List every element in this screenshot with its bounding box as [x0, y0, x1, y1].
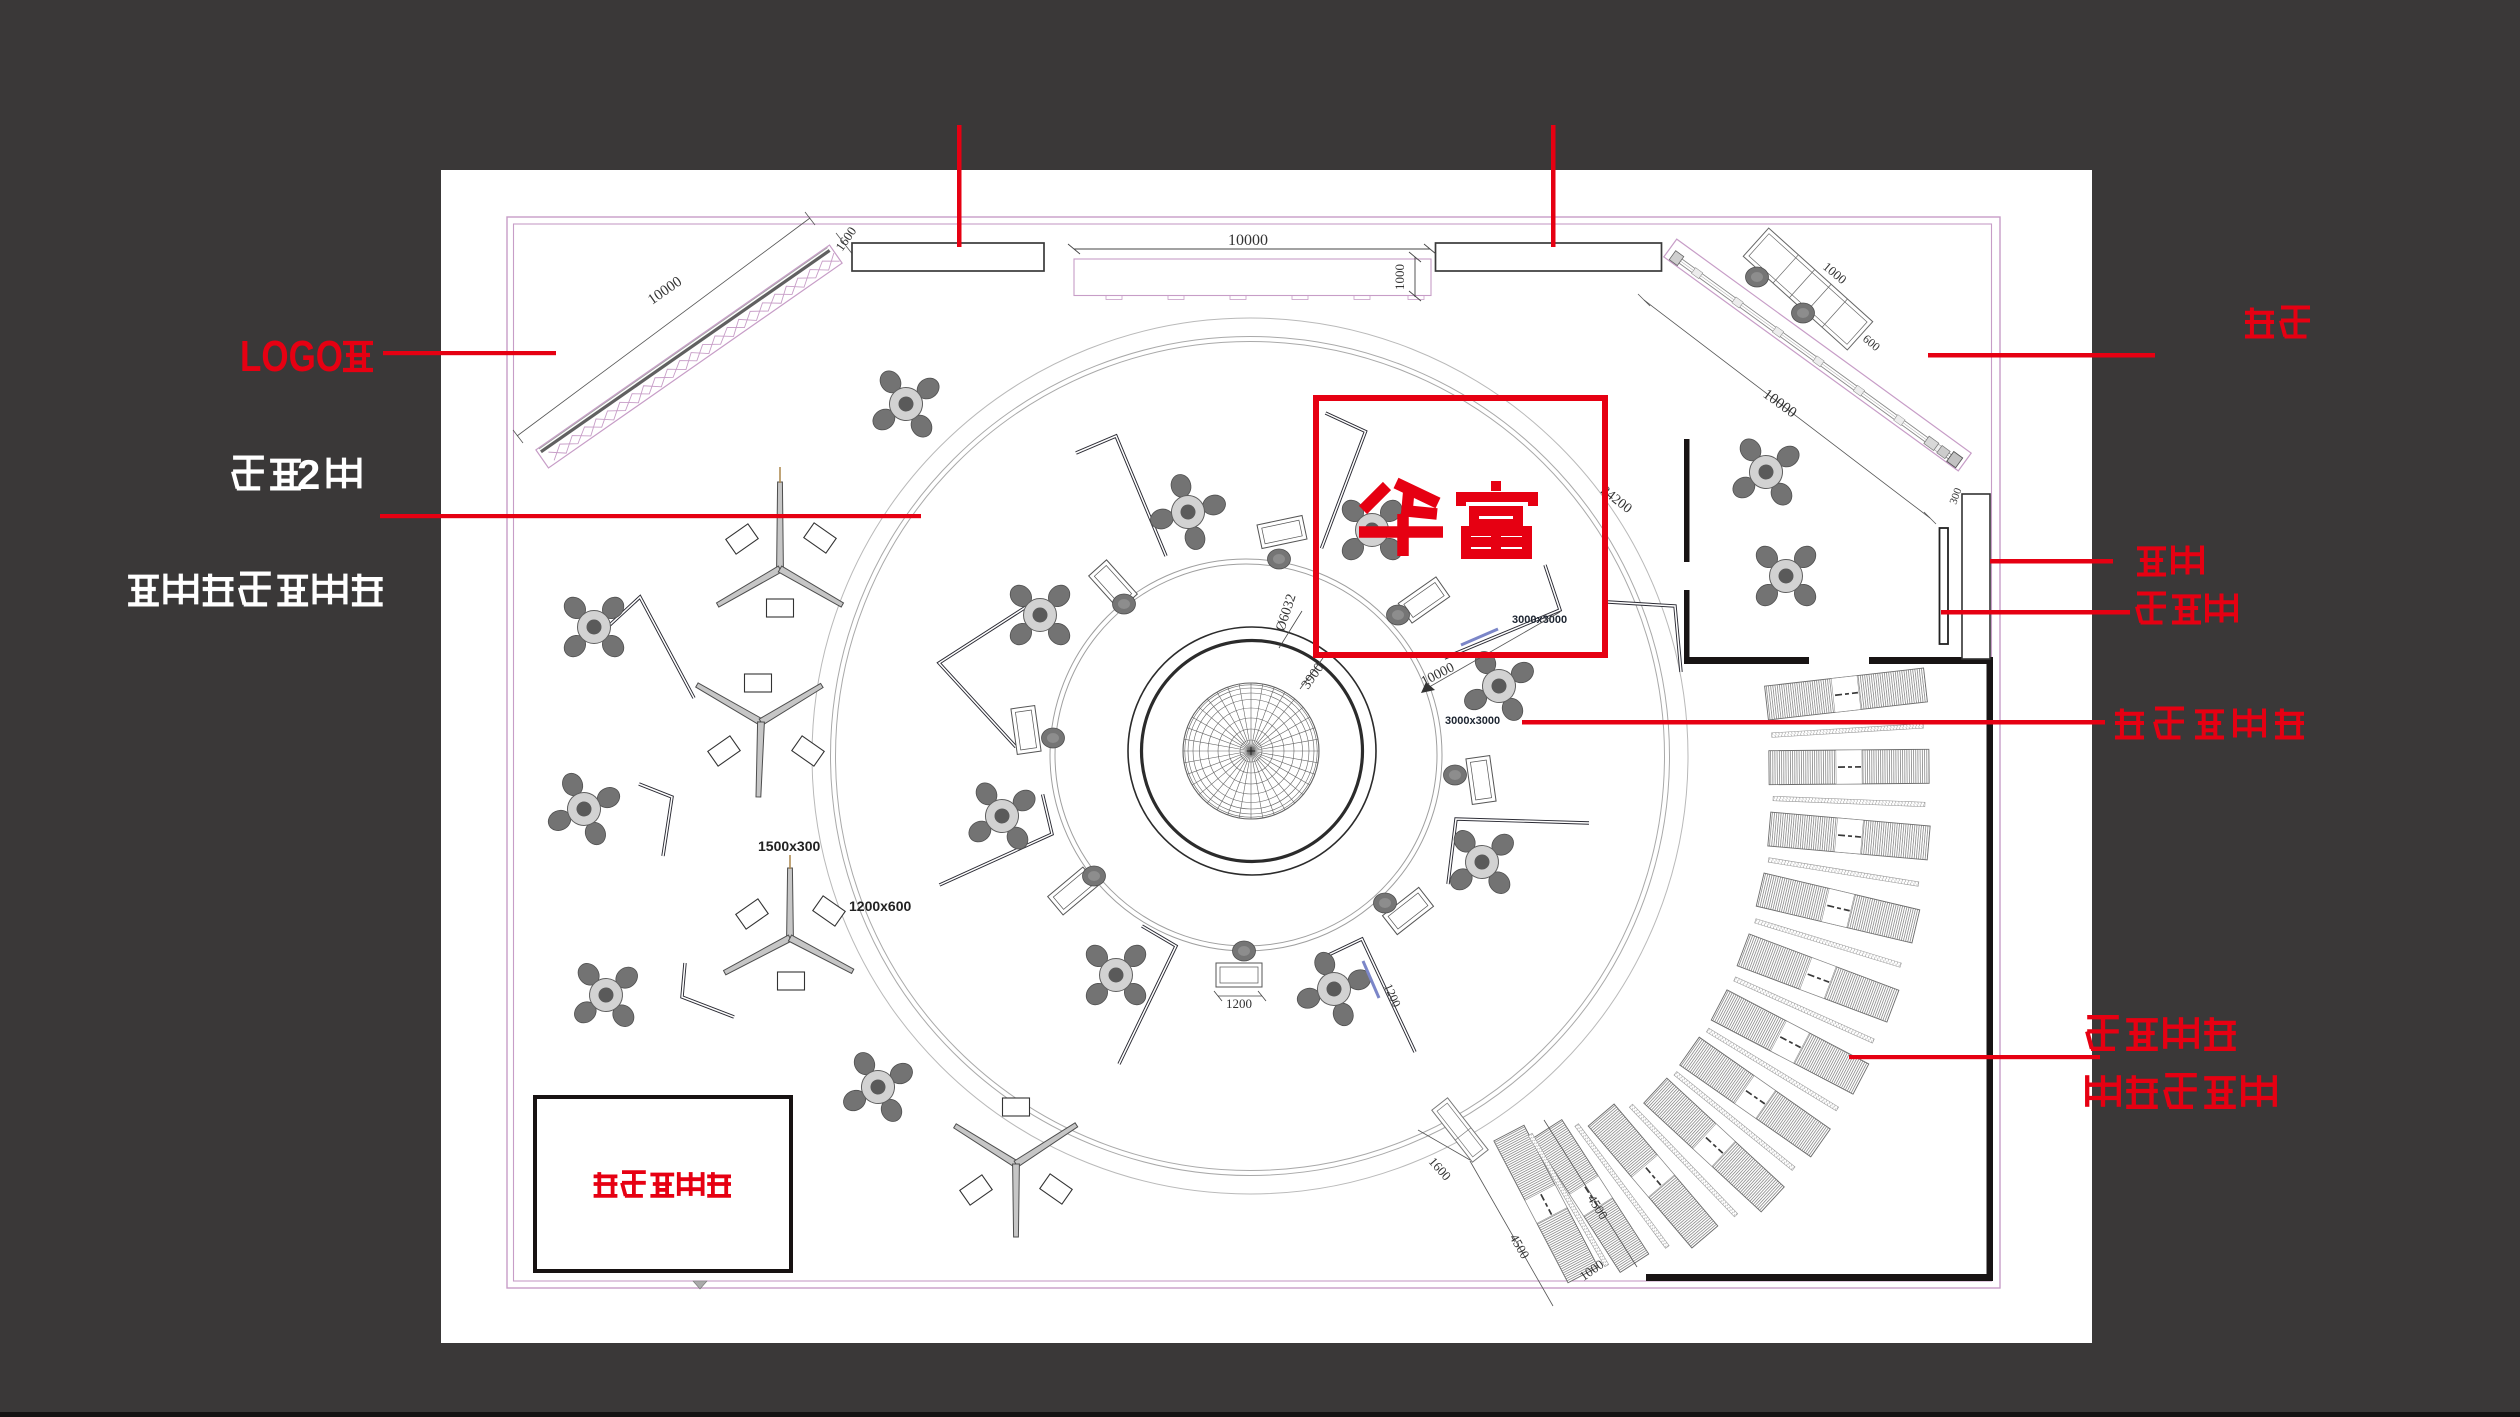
- svg-text:1500x300: 1500x300: [758, 838, 821, 854]
- svg-text:1200x600: 1200x600: [849, 898, 912, 914]
- svg-text:LOGO: LOGO: [240, 332, 343, 381]
- svg-text:1200: 1200: [1226, 996, 1252, 1011]
- svg-text:1000: 1000: [1392, 264, 1407, 290]
- svg-text:3000x3000: 3000x3000: [1445, 715, 1500, 727]
- svg-text:10000: 10000: [1228, 232, 1268, 249]
- svg-text:2: 2: [297, 451, 320, 498]
